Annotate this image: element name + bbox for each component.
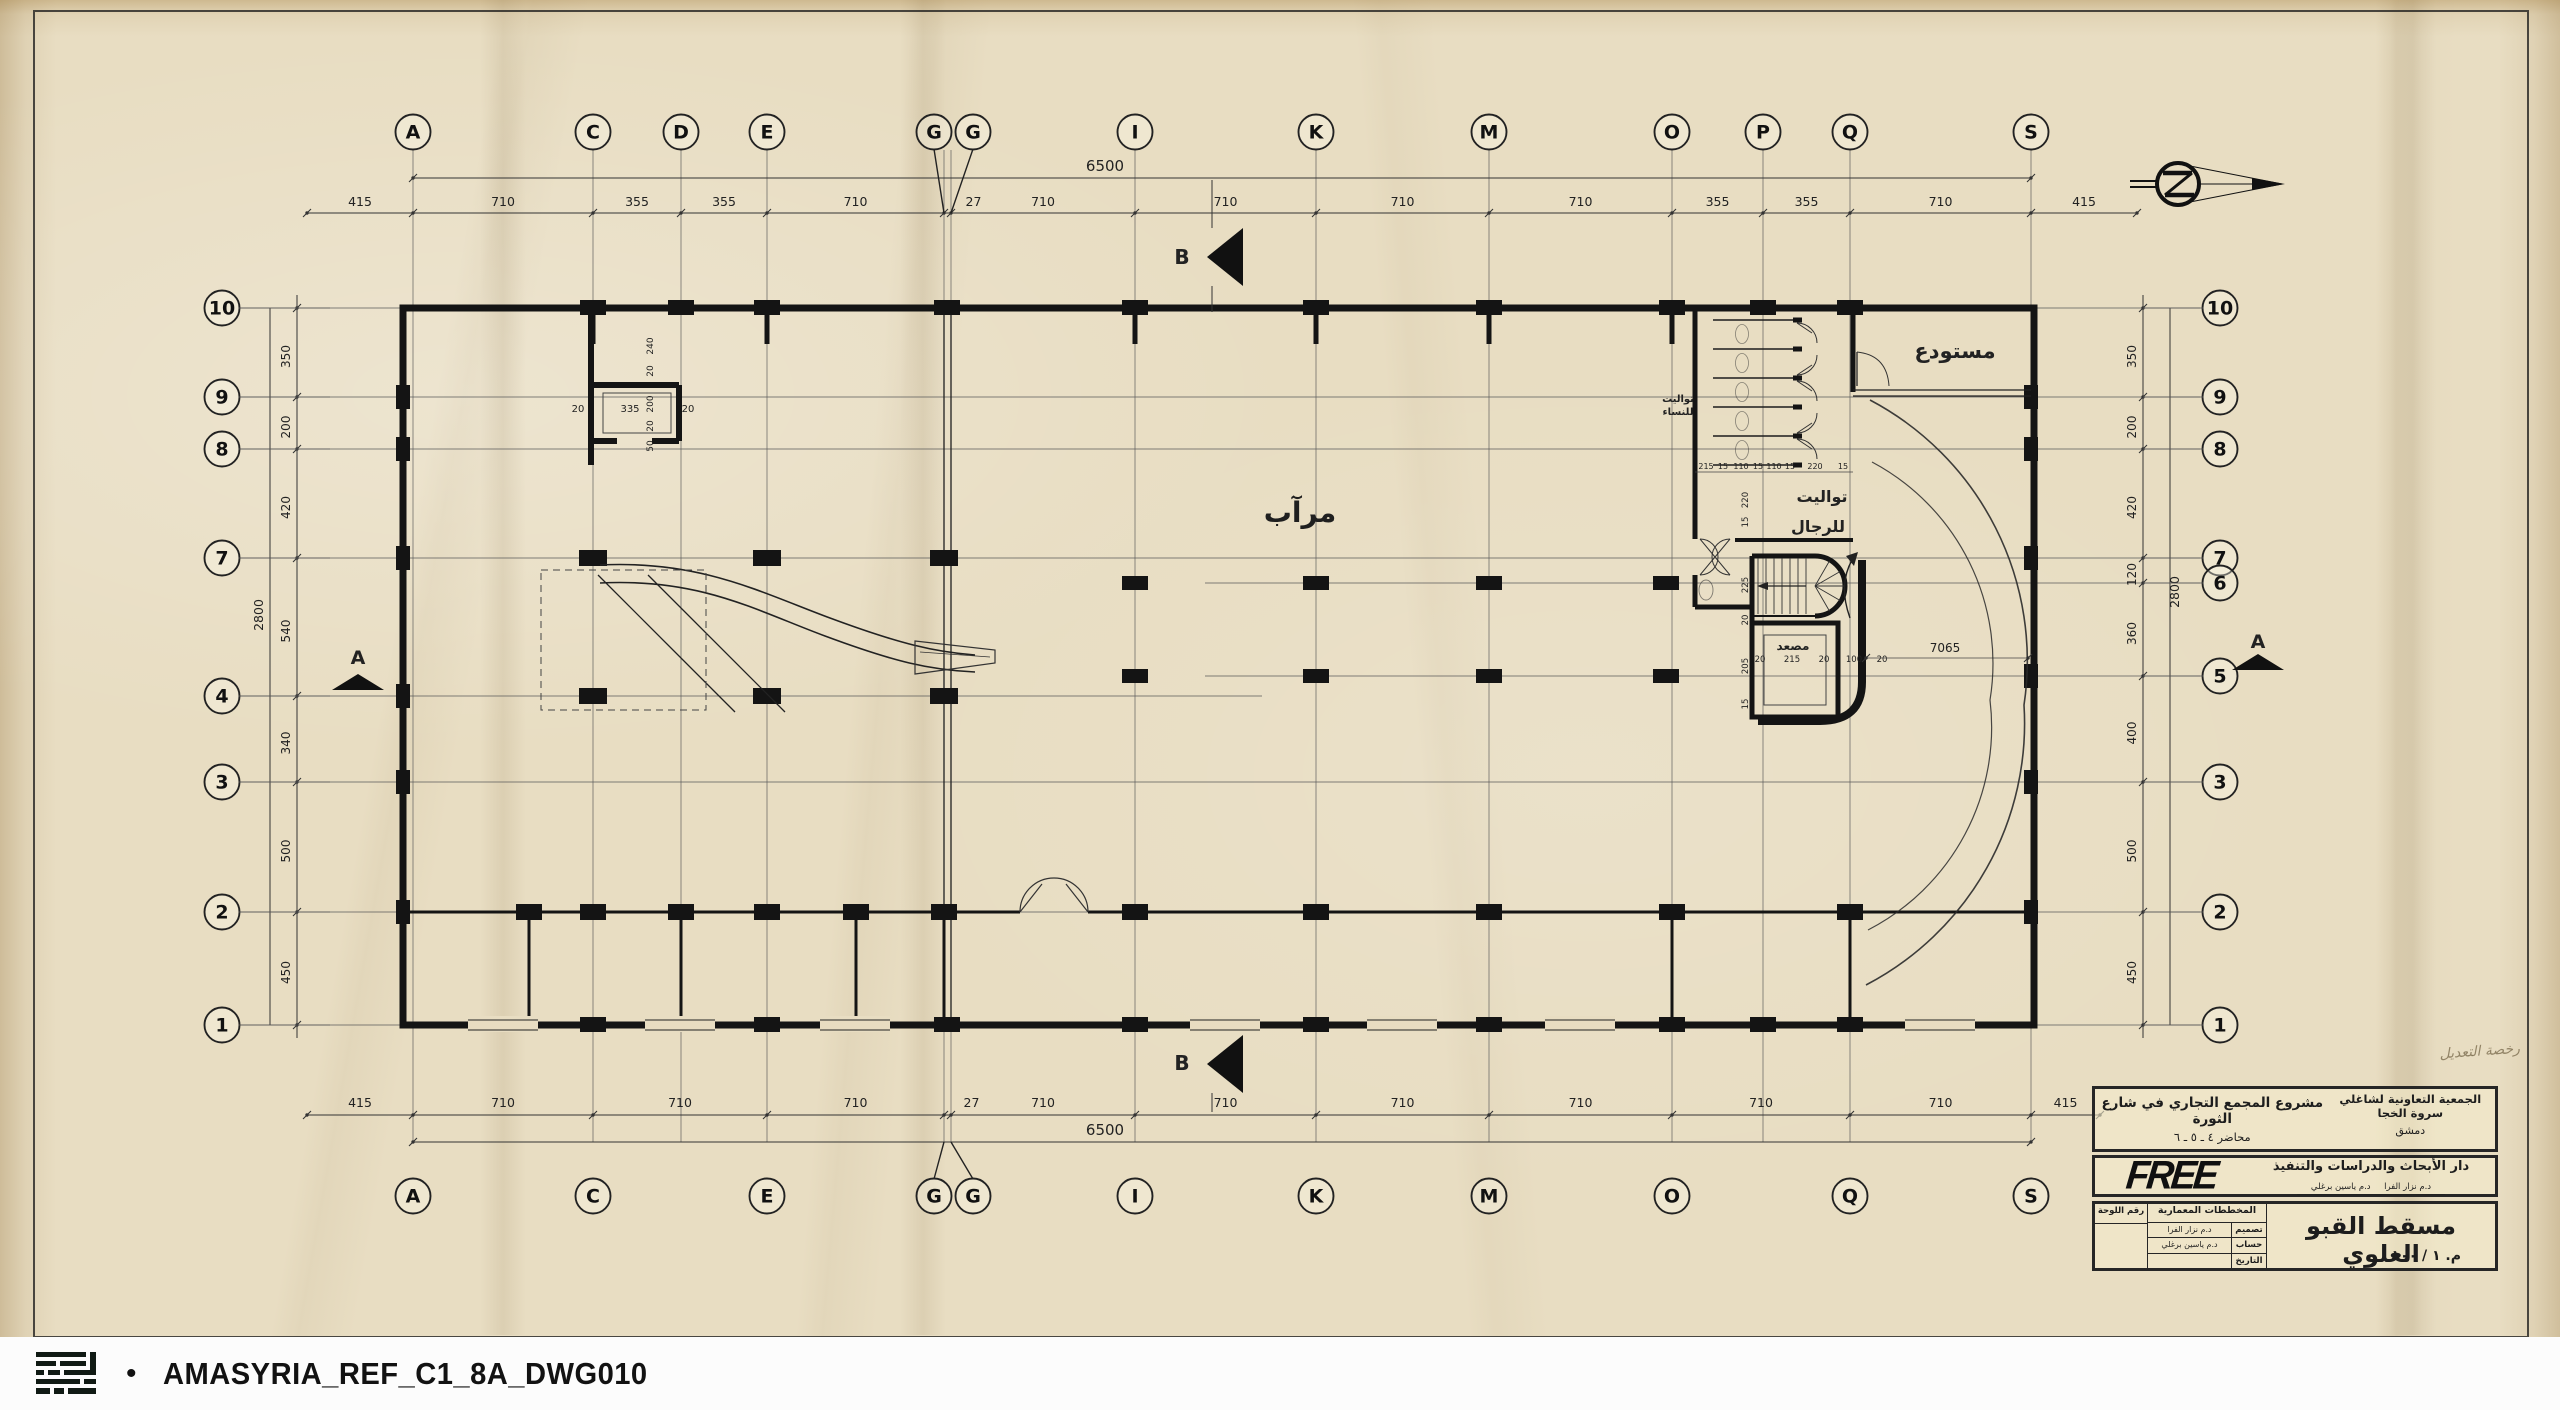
svg-text:415: 415 xyxy=(348,194,372,209)
svg-text:110: 110 xyxy=(1733,462,1748,471)
client-name: الجمعية التعاونية لشاغلي سروة الخجا xyxy=(2332,1092,2489,1120)
svg-text:710: 710 xyxy=(1929,194,1953,209)
svg-text:110: 110 xyxy=(1766,462,1781,471)
sheet-number-column: رقم اللوحة xyxy=(2095,1204,2147,1268)
svg-text:27: 27 xyxy=(964,1095,980,1110)
svg-text:20: 20 xyxy=(646,420,656,432)
svg-text:I: I xyxy=(1131,122,1138,144)
title-block-project-row: الجمعية التعاونية لشاغلي سروة الخجا دمشق… xyxy=(2092,1086,2498,1152)
svg-text:710: 710 xyxy=(491,1095,515,1110)
design-row: تصميم د.م نزار الفرا xyxy=(2148,1223,2266,1238)
svg-text:20: 20 xyxy=(1741,615,1751,626)
free-logo: FREE xyxy=(2093,1153,2250,1198)
date-value xyxy=(2148,1254,2231,1268)
title-block-table: مسقط القبو العلوي م. ١ / ١٠٠ المخططات ال… xyxy=(2092,1201,2498,1271)
svg-text:710: 710 xyxy=(844,1095,868,1110)
svg-text:8: 8 xyxy=(215,439,228,461)
svg-text:E: E xyxy=(761,122,774,144)
svg-text:A: A xyxy=(406,122,421,144)
svg-text:360: 360 xyxy=(2125,622,2139,645)
svg-text:تواليت: تواليت xyxy=(1662,394,1694,405)
svg-text:G: G xyxy=(926,122,942,144)
svg-text:A: A xyxy=(2251,631,2266,653)
svg-text:710: 710 xyxy=(1214,194,1238,209)
svg-text:G: G xyxy=(926,1186,942,1208)
svg-text:10: 10 xyxy=(209,298,235,320)
svg-text:710: 710 xyxy=(844,194,868,209)
svg-text:710: 710 xyxy=(491,194,515,209)
calc-label: حساب xyxy=(2231,1238,2266,1252)
svg-text:450: 450 xyxy=(279,961,293,984)
scanned-drawing-page: 6500415710355355710277107107107103553557… xyxy=(0,0,2560,1410)
svg-text:710: 710 xyxy=(1031,194,1055,209)
svg-text:220: 220 xyxy=(1807,462,1822,471)
svg-text:7065: 7065 xyxy=(1930,641,1961,655)
svg-text:9: 9 xyxy=(215,387,228,409)
svg-text:6: 6 xyxy=(2213,573,2226,595)
firm-cell: دار الأبحاث والدراسات والتنفيذ د.م نزار … xyxy=(2247,1157,2495,1195)
svg-text:مرآب: مرآب xyxy=(1264,495,1337,529)
svg-text:9: 9 xyxy=(2213,387,2226,409)
svg-text:1: 1 xyxy=(2213,1015,2226,1037)
svg-text:8: 8 xyxy=(2213,439,2226,461)
svg-text:710: 710 xyxy=(1391,194,1415,209)
svg-text:3: 3 xyxy=(2213,772,2226,794)
svg-text:710: 710 xyxy=(668,1095,692,1110)
svg-text:15: 15 xyxy=(1718,462,1728,471)
svg-text:20: 20 xyxy=(572,404,585,415)
svg-text:1: 1 xyxy=(215,1015,228,1037)
svg-text:M: M xyxy=(1480,1186,1499,1208)
svg-text:K: K xyxy=(1309,122,1325,144)
svg-text:2800: 2800 xyxy=(2167,576,2182,608)
amasyria-logo-icon xyxy=(34,1351,98,1397)
svg-text:120: 120 xyxy=(2125,563,2139,586)
svg-text:220: 220 xyxy=(1741,492,1751,508)
svg-text:540: 540 xyxy=(279,620,293,643)
svg-text:20: 20 xyxy=(1755,655,1766,665)
svg-text:710: 710 xyxy=(1031,1095,1055,1110)
date-label: التاريخ xyxy=(2231,1254,2266,1268)
svg-text:P: P xyxy=(1756,122,1770,144)
svg-text:15: 15 xyxy=(1753,462,1763,471)
svg-text:710: 710 xyxy=(1214,1095,1238,1110)
svg-text:للنساء: للنساء xyxy=(1663,407,1694,418)
svg-text:M: M xyxy=(1480,122,1499,144)
svg-text:27: 27 xyxy=(966,194,982,209)
svg-text:2800: 2800 xyxy=(251,599,266,631)
project-ref: محاضر ٤ ـ ٥ ـ ٦ xyxy=(2099,1130,2326,1144)
svg-text:415: 415 xyxy=(2072,194,2096,209)
svg-text:400: 400 xyxy=(2125,722,2139,745)
firm-engineers: د.م نزار الفرا د.م ياسين برغلي xyxy=(2297,1181,2445,1195)
svg-text:I: I xyxy=(1131,1186,1138,1208)
caption-bullet: • xyxy=(126,1357,137,1391)
svg-text:C: C xyxy=(586,1186,600,1208)
svg-text:710: 710 xyxy=(1569,1095,1593,1110)
scan-caption-bar: • AMASYRIA_REF_C1_8A_DWG010 xyxy=(0,1337,2560,1410)
firm-department: دار الأبحاث والدراسات والتنفيذ xyxy=(2247,1159,2495,1174)
svg-text:مصعد: مصعد xyxy=(1777,639,1810,653)
svg-text:415: 415 xyxy=(348,1095,372,1110)
svg-text:Q: Q xyxy=(1842,122,1858,144)
svg-text:20: 20 xyxy=(646,365,656,377)
caption-text: AMASYRIA_REF_C1_8A_DWG010 xyxy=(163,1356,648,1392)
svg-text:G: G xyxy=(965,122,981,144)
title-block-firm-row: دار الأبحاث والدراسات والتنفيذ د.م نزار … xyxy=(2092,1155,2498,1197)
svg-text:420: 420 xyxy=(279,496,293,519)
calc-value: د.م ياسين برغلي xyxy=(2148,1238,2231,1252)
credits-header: المخططات المعمارية xyxy=(2148,1204,2266,1223)
svg-text:6500: 6500 xyxy=(1086,157,1124,175)
svg-text:E: E xyxy=(761,1186,774,1208)
design-value: د.م نزار الفرا xyxy=(2148,1223,2231,1237)
svg-text:240: 240 xyxy=(646,337,656,354)
svg-text:2: 2 xyxy=(215,902,228,924)
svg-text:200: 200 xyxy=(2125,416,2139,439)
design-label: تصميم xyxy=(2231,1223,2266,1237)
svg-text:6500: 6500 xyxy=(1086,1121,1124,1139)
svg-text:15: 15 xyxy=(1838,462,1848,471)
svg-text:B: B xyxy=(1174,245,1189,269)
svg-text:340: 340 xyxy=(279,732,293,755)
svg-text:415: 415 xyxy=(2054,1095,2078,1110)
svg-text:215: 215 xyxy=(1698,462,1713,471)
svg-text:50: 50 xyxy=(646,440,656,452)
title-block: الجمعية التعاونية لشاغلي سروة الخجا دمشق… xyxy=(2092,1086,2498,1271)
svg-text:O: O xyxy=(1664,1186,1680,1208)
svg-text:10: 10 xyxy=(2207,298,2233,320)
svg-text:4: 4 xyxy=(215,686,228,708)
svg-text:20: 20 xyxy=(1877,655,1888,665)
drawing-scale: م. ١ / ١٠٠ xyxy=(2391,1248,2461,1264)
svg-text:O: O xyxy=(1664,122,1680,144)
svg-text:15: 15 xyxy=(1741,699,1751,710)
svg-text:S: S xyxy=(2024,1186,2038,1208)
svg-text:مستودع: مستودع xyxy=(1914,339,1995,363)
svg-text:500: 500 xyxy=(279,840,293,863)
svg-text:15: 15 xyxy=(1741,517,1751,528)
svg-text:355: 355 xyxy=(712,194,736,209)
svg-text:200: 200 xyxy=(646,395,656,412)
svg-text:450: 450 xyxy=(2125,961,2139,984)
svg-text:710: 710 xyxy=(1929,1095,1953,1110)
svg-text:710: 710 xyxy=(1569,194,1593,209)
svg-text:2: 2 xyxy=(2213,902,2226,924)
svg-text:710: 710 xyxy=(1749,1095,1773,1110)
svg-text:C: C xyxy=(586,122,600,144)
svg-text:355: 355 xyxy=(1706,194,1730,209)
svg-text:200: 200 xyxy=(279,416,293,439)
svg-text:B: B xyxy=(1174,1051,1189,1075)
svg-text:A: A xyxy=(406,1186,421,1208)
svg-text:S: S xyxy=(2024,122,2038,144)
svg-text:للرجال: للرجال xyxy=(1791,517,1845,536)
drawing-title-cell: مسقط القبو العلوي م. ١ / ١٠٠ xyxy=(2266,1204,2495,1268)
svg-text:500: 500 xyxy=(2125,840,2139,863)
svg-text:5: 5 xyxy=(2213,666,2226,688)
credits-column: المخططات المعمارية تصميم د.م نزار الفرا … xyxy=(2147,1204,2266,1268)
svg-text:G: G xyxy=(965,1186,981,1208)
svg-text:15: 15 xyxy=(1785,462,1795,471)
svg-text:225: 225 xyxy=(1741,577,1751,593)
svg-text:215: 215 xyxy=(1784,655,1800,665)
project-name: مشروع المجمع التجاري في شارع الثورة xyxy=(2099,1095,2326,1127)
calc-row: حساب د.م ياسين برغلي xyxy=(2148,1238,2266,1253)
svg-text:3: 3 xyxy=(215,772,228,794)
svg-text:7: 7 xyxy=(215,548,228,570)
date-row: التاريخ xyxy=(2148,1254,2266,1268)
svg-text:355: 355 xyxy=(1795,194,1819,209)
svg-text:710: 710 xyxy=(1391,1095,1415,1110)
svg-text:350: 350 xyxy=(2125,345,2139,368)
svg-text:20: 20 xyxy=(682,404,695,415)
svg-text:A: A xyxy=(351,647,366,669)
svg-text:تواليت: تواليت xyxy=(1797,487,1848,506)
svg-text:D: D xyxy=(673,122,689,144)
client-city: دمشق xyxy=(2332,1124,2489,1137)
svg-text:100: 100 xyxy=(1846,655,1862,665)
svg-text:205: 205 xyxy=(1741,658,1751,674)
sheet-number-label: رقم اللوحة xyxy=(2095,1204,2147,1224)
svg-text:420: 420 xyxy=(2125,496,2139,519)
project-cell: مشروع المجمع التجاري في شارع الثورة محاض… xyxy=(2095,1089,2330,1149)
svg-text:355: 355 xyxy=(625,194,649,209)
svg-text:20: 20 xyxy=(1819,655,1830,665)
client-cell: الجمعية التعاونية لشاغلي سروة الخجا دمشق xyxy=(2330,1089,2495,1149)
svg-text:350: 350 xyxy=(279,345,293,368)
svg-text:335: 335 xyxy=(620,404,639,415)
svg-text:Q: Q xyxy=(1842,1186,1858,1208)
svg-text:K: K xyxy=(1309,1186,1325,1208)
